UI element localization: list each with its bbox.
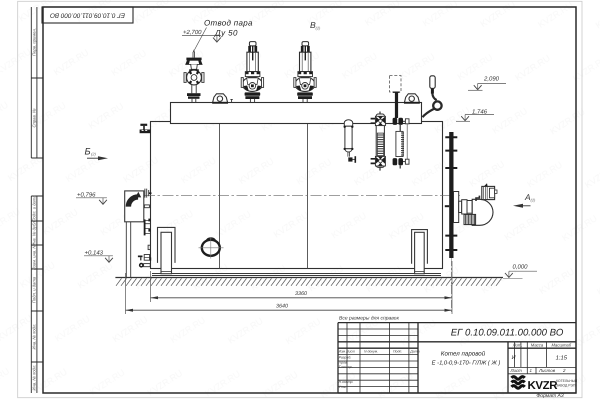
svg-text:Разраб.: Разраб. [339,355,352,359]
svg-text:Е -1,0-0,9-170- Г/ЛЖ ( Ж ): Е -1,0-0,9-170- Г/ЛЖ ( Ж ) [432,359,501,366]
svg-text:Утв.: Утв. [339,385,347,389]
svg-text:Инв. № подл.: Инв. № подл. [32,324,37,350]
svg-text:Масса: Масса [531,343,544,348]
svg-text:+0,143: +0,143 [85,249,104,256]
svg-text:Отвод пара: Отвод пара [204,18,253,27]
svg-text:Инв. № дубл.: Инв. № дубл. [32,220,37,246]
svg-text:Лит.: Лит. [512,343,523,348]
svg-text:Листов: Листов [538,368,556,373]
svg-text:N докум.: N докум. [364,350,378,354]
svg-text:Подп. и дата: Подп. и дата [32,276,37,303]
svg-text:И: И [512,355,516,361]
svg-text:Масштаб: Масштаб [552,343,572,348]
svg-text:Инв. № подл.: Инв. № подл. [32,365,37,391]
svg-text:Н.контр.: Н.контр. [339,380,354,384]
svg-text:Справ. №: Справ. № [32,108,37,127]
svg-text:Перв. примен.: Перв. примен. [32,28,37,56]
svg-text:2: 2 [562,368,566,373]
svg-text:KVZR: KVZR [528,380,559,392]
svg-text:(2): (2) [91,152,97,157]
svg-text:Взам. инв. №: Взам. инв. № [32,244,37,270]
svg-text:Изм Лист: Изм Лист [339,350,356,354]
svg-text:3640: 3640 [276,303,288,309]
svg-text:+2,700: +2,700 [183,29,202,36]
svg-text:Т.контр.: Т.контр. [339,365,353,369]
svg-text:Ду 50: Ду 50 [214,28,238,37]
svg-text:+0,796: +0,796 [77,191,96,198]
svg-text:Все размеры для справок: Все размеры для справок [339,315,400,321]
svg-text:Подп. и дата: Подп. и дата [32,195,37,222]
svg-text:ЗАВОД РЭП: ЗАВОД РЭП [556,384,576,388]
svg-text:2,090: 2,090 [483,76,500,83]
svg-text:Подп.: Подп. [393,350,402,354]
svg-text:ЕГ 0.10.09.011.00.000 ВО: ЕГ 0.10.09.011.00.000 ВО [50,12,125,19]
svg-text:3360: 3360 [295,291,307,297]
svg-text:0,000: 0,000 [513,263,529,270]
svg-text:Формат А3: Формат А3 [536,393,564,399]
svg-text:Б: Б [85,146,91,157]
svg-text:(2): (2) [316,26,322,31]
svg-text:1:15: 1:15 [556,356,568,362]
svg-text:ЕГ 0.10.09.011.00.000 ВО: ЕГ 0.10.09.011.00.000 ВО [451,328,564,339]
svg-text:Пров.: Пров. [339,360,348,364]
svg-text:Лист: Лист [510,368,523,373]
svg-text:(2): (2) [531,198,537,203]
svg-text:Котел паровой: Котел паровой [441,351,486,358]
svg-text:Дата: Дата [409,350,419,354]
svg-text:КОТЕЛЬНЫЙ: КОТЕЛЬНЫЙ [556,378,578,383]
